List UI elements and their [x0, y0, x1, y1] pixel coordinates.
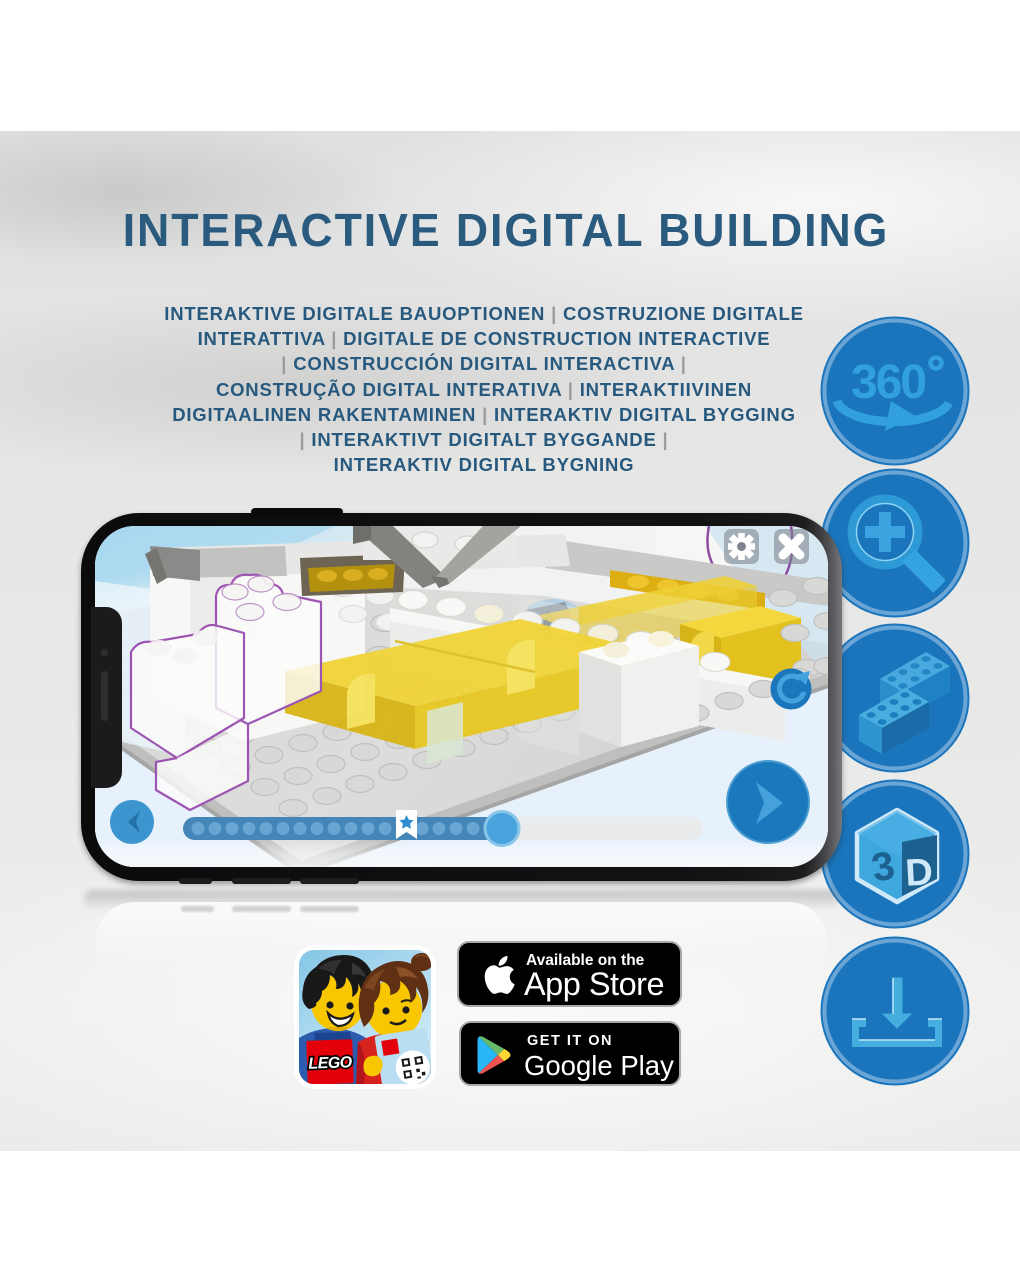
svg-text:360: 360	[851, 356, 925, 409]
svg-text:D: D	[904, 851, 934, 894]
svg-text:LEGO: LEGO	[308, 1054, 353, 1073]
